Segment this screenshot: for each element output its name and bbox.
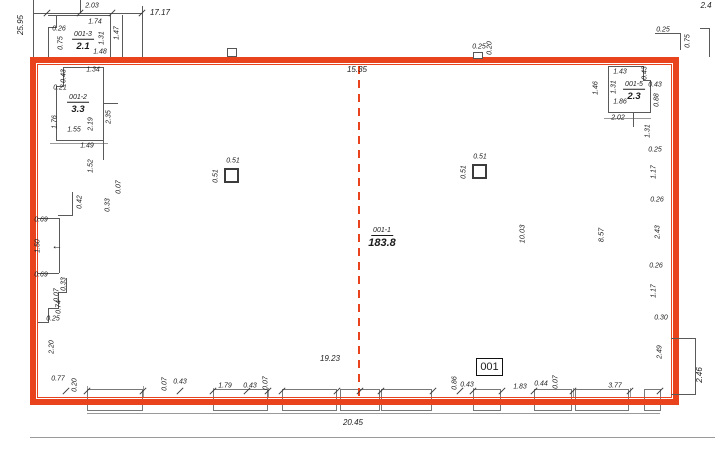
plan-line (48, 27, 49, 57)
dim-label: 3.77 (608, 383, 622, 390)
room-area: 2.1 (72, 42, 94, 52)
dim-label: 2.43 (655, 225, 662, 239)
plan-line (633, 112, 634, 127)
plan-line (608, 112, 651, 113)
dim-label: 1.86 (613, 99, 627, 106)
room-area: 183.8 (368, 238, 396, 249)
plan-line (671, 338, 696, 339)
plan-line (671, 394, 696, 395)
plan-line (103, 103, 118, 104)
dim-label: 1.17 (651, 165, 658, 179)
room-id: 001-1 (371, 227, 393, 236)
dim-label: 15.35 (347, 66, 367, 74)
dim-label: 0.21 (53, 85, 67, 92)
dim-label: 0.51 (461, 165, 468, 179)
plan-line (608, 66, 644, 67)
dim-label: 0.42 (77, 195, 84, 209)
dim-label: 1.49 (80, 143, 94, 150)
dim-label: 1.31 (99, 31, 106, 45)
dim-label: 0.69 (34, 272, 48, 279)
plan-line (58, 215, 73, 216)
dim-label: 1.76 (52, 115, 59, 129)
dim-label: 0.75 (685, 34, 692, 48)
dim-label: 25.95 (17, 15, 25, 35)
dim-label: 0.07 (116, 180, 123, 194)
dim-label: 0.43 (642, 66, 649, 80)
dim-label: 2.03 (85, 3, 99, 10)
column (224, 168, 239, 183)
dim-label: 1.17 (651, 284, 658, 298)
dim-label: 1.79 (218, 383, 232, 390)
dim-label: 1.48 (93, 49, 107, 56)
dim-label: 2.20 (49, 340, 56, 354)
dim-label: 0.43 (173, 379, 187, 386)
dim-label: 0.88 (654, 93, 661, 107)
dim-label: 19.23 (320, 355, 340, 363)
dim-label: 0.43 (243, 383, 257, 390)
wall-protrusion (473, 52, 483, 59)
dim-label: 0.25 (656, 27, 670, 34)
dim-label: 2.19 (88, 117, 95, 131)
dim-label: 20.45 (343, 419, 363, 427)
room-label-001-1: 001-1 183.8 (368, 219, 396, 249)
dim-label: 0.20 (72, 378, 79, 392)
dim-label: 2.46 (696, 367, 704, 383)
dim-label: 0.44 (534, 381, 548, 388)
plan-line (30, 437, 715, 438)
dim-label: 0.07 (162, 377, 169, 391)
room-id: 001-5 (623, 81, 645, 90)
room-id: 001-3 (72, 31, 94, 40)
plan-line (110, 15, 111, 57)
plan-line (680, 33, 681, 50)
inner-wall-line (37, 64, 672, 398)
dim-label: 1.83 (513, 384, 527, 391)
dim-label: 8.57 (597, 228, 605, 243)
dim-label: 0.26 (649, 263, 663, 270)
dim-label: 0.43 (648, 82, 662, 89)
dim-label: 0.77 (51, 376, 65, 383)
dim-label: 0.69 (34, 217, 48, 224)
dim-label: 1.46 (593, 81, 600, 95)
plan-line (700, 28, 710, 29)
dim-label: 2.02 (611, 115, 625, 122)
wall-protrusion (227, 48, 237, 57)
dim-label: 1.31 (611, 80, 618, 94)
dim-label: 0.74 (56, 300, 63, 314)
plan-line (709, 28, 710, 57)
plan-line (48, 15, 110, 16)
plan-line (608, 66, 609, 112)
dim-label: 0.30 (654, 315, 668, 322)
entrance-arrow-icon: ← (52, 240, 63, 252)
dim-label: 0.25 (46, 316, 60, 323)
dim-label: 17.17 (150, 9, 170, 17)
column (472, 164, 487, 179)
room-id: 001-2 (67, 94, 89, 103)
dim-label: 2.4 (700, 2, 711, 10)
dim-label: 0.26 (52, 26, 66, 33)
dim-label: 0.43 (460, 382, 474, 389)
dim-label: 0.33 (61, 277, 68, 291)
floor-plan-canvas: 001-3 2.1 001-2 3.3 001-5 2.3 001-1 183.… (0, 0, 715, 450)
unit-badge: 001 (476, 358, 503, 376)
plan-line (33, 0, 34, 57)
dim-label: 1.55 (67, 127, 81, 134)
plan-line (33, 13, 142, 14)
dim-label: 0.25 (472, 44, 486, 51)
dim-label: 2.49 (657, 345, 664, 359)
dim-label: 0.75 (58, 36, 65, 50)
dim-label: 0.26 (650, 197, 664, 204)
room-label-001-2: 001-2 3.3 (67, 86, 89, 115)
dim-label: 0.07 (263, 376, 270, 390)
dim-label: 0.20 (487, 41, 494, 55)
dim-label: 0.43 (61, 69, 68, 83)
dim-label: 0.25 (648, 147, 662, 154)
dim-label: 0.33 (105, 198, 112, 212)
dim-label: 0.51 (473, 154, 487, 161)
dim-label: 10.03 (518, 225, 526, 244)
dim-label: 0.86 (452, 376, 459, 390)
center-axis-dashed-line (358, 66, 360, 396)
plan-line (56, 140, 103, 141)
plan-line (72, 192, 73, 215)
dim-label: 1.50 (35, 239, 42, 253)
plan-line (103, 140, 104, 160)
plan-line (122, 15, 123, 57)
room-label-001-3: 001-3 2.1 (72, 23, 94, 52)
dim-label: 2.35 (106, 110, 113, 124)
dim-label: 1.31 (645, 124, 652, 138)
plan-line (142, 6, 143, 57)
room-area: 3.3 (67, 105, 89, 115)
dim-label: 0.07 (553, 375, 560, 389)
dim-label: 1.47 (114, 26, 121, 40)
plan-line (56, 86, 57, 140)
dim-label: 1.74 (88, 19, 102, 26)
dim-label: 0.51 (226, 158, 240, 165)
dim-label: 1.52 (88, 159, 95, 173)
dim-label: 0.51 (213, 169, 220, 183)
dim-label: 1.43 (613, 69, 627, 76)
plan-line (87, 413, 660, 414)
dim-label: 1.34 (86, 67, 100, 74)
